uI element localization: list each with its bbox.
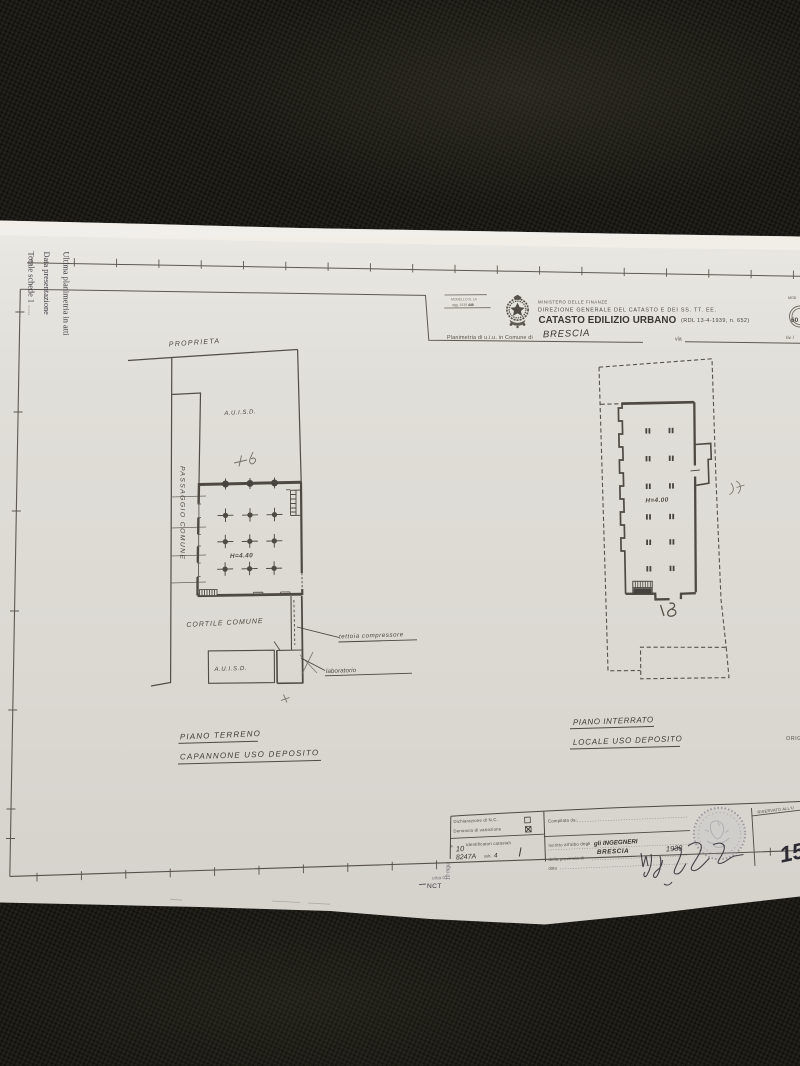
svg-text:CATASTO EDILIZIO URBANO: CATASTO EDILIZIO URBANO — [539, 315, 677, 326]
svg-text:Data presentazione: Data presentazione — [42, 252, 51, 316]
svg-text:MOD: MOD — [788, 296, 797, 300]
svg-text:A.U.I.S.D.: A.U.I.S.D. — [213, 666, 247, 673]
svg-text:15: 15 — [777, 838, 800, 868]
svg-text:Planimetria di u.i.u. in C: Planimetria di u.i.u. in Comune di — [447, 335, 533, 341]
svg-text:MINISTERO DELLE FINANZE: MINISTERO DELLE FINANZE — [538, 300, 608, 305]
svg-text:agg. 1939 449: agg. 1939 449 — [452, 303, 474, 307]
svg-text:sub.: sub. — [484, 853, 492, 858]
svg-text:via: via — [675, 336, 682, 342]
svg-text:laboratorio: laboratorio — [326, 667, 357, 675]
svg-text:10: 10 — [456, 844, 466, 854]
svg-text:PASSAGGIO COMUNE: PASSAGGIO COMUNE — [179, 466, 186, 560]
svg-text:BRESCIA: BRESCIA — [543, 328, 591, 341]
svg-text:8247A: 8247A — [456, 853, 477, 861]
svg-text:BRESCIA: BRESCIA — [597, 848, 630, 856]
svg-text:Ultima planimetria in atti: Ultima planimetria in atti — [62, 252, 71, 337]
svg-text:Totale schede 1 .....: Totale schede 1 ..... — [27, 252, 36, 316]
svg-text:riv. /: riv. / — [786, 335, 795, 340]
svg-text:F.: F. — [450, 844, 453, 849]
svg-text:(RDL 13-4-1939, n. 652): (RDL 13-4-1939, n. 652) — [681, 318, 750, 324]
svg-text:urba 01: urba 01 — [432, 875, 448, 881]
svg-text:DIREZIONE GENERALE DEL CATA: DIREZIONE GENERALE DEL CATASTO E DEI SS.… — [538, 307, 717, 313]
svg-text:data: data — [548, 865, 557, 870]
svg-text:NCT: NCT — [427, 883, 442, 890]
svg-text:H=4.40: H=4.40 — [230, 552, 253, 560]
svg-text:MODELLO N. 14: MODELLO N. 14 — [451, 298, 477, 302]
svg-text:H=4.00: H=4.00 — [645, 497, 668, 505]
svg-text:ORIG: ORIG — [786, 736, 800, 742]
